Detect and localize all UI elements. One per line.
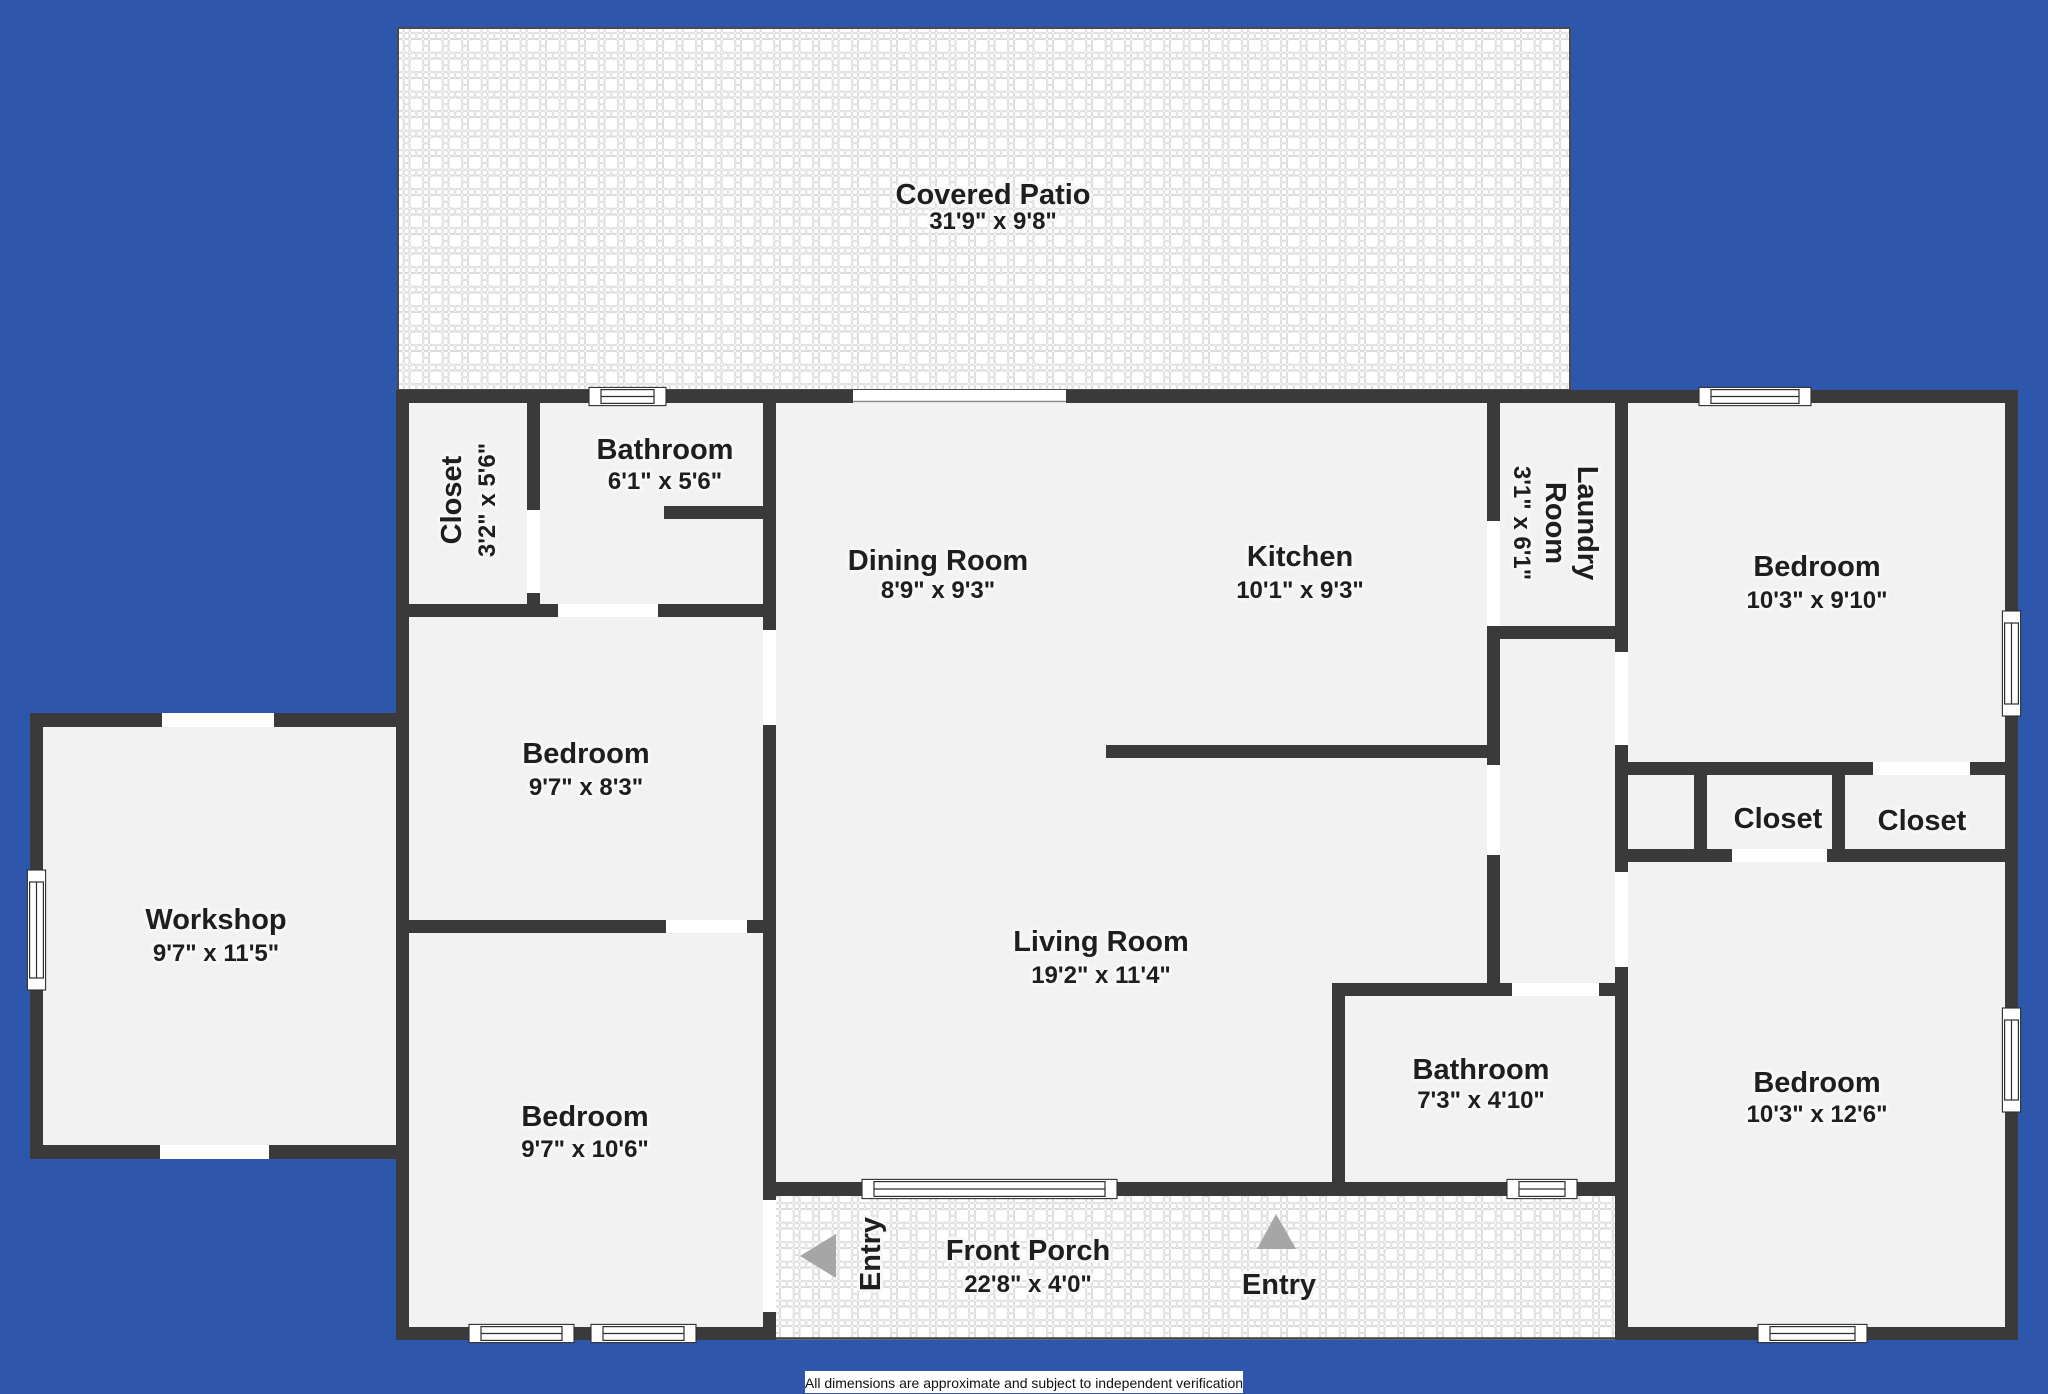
svg-text:Bathroom: Bathroom — [597, 434, 734, 466]
svg-text:Room: Room — [1539, 482, 1571, 564]
svg-text:3'2" x 5'6": 3'2" x 5'6" — [474, 443, 501, 557]
svg-text:Bedroom: Bedroom — [1753, 1067, 1880, 1099]
svg-text:Bedroom: Bedroom — [1753, 551, 1880, 583]
svg-text:Bedroom: Bedroom — [522, 738, 649, 770]
svg-text:Workshop: Workshop — [145, 904, 286, 936]
svg-text:Bedroom: Bedroom — [521, 1101, 648, 1133]
svg-text:Dining Room: Dining Room — [848, 545, 1028, 577]
svg-text:19'2" x 11'4": 19'2" x 11'4" — [1031, 962, 1171, 989]
svg-text:All dimensions are approximate: All dimensions are approximate and subje… — [805, 1375, 1243, 1391]
svg-text:Covered Patio: Covered Patio — [896, 179, 1091, 211]
svg-text:Closet: Closet — [436, 455, 468, 544]
svg-text:Living Room: Living Room — [1013, 926, 1189, 958]
svg-text:Kitchen: Kitchen — [1247, 541, 1353, 573]
svg-text:Entry: Entry — [1242, 1269, 1316, 1301]
svg-text:Entry: Entry — [855, 1217, 887, 1291]
svg-text:Bathroom: Bathroom — [1413, 1054, 1550, 1086]
svg-text:31'9" x 9'8": 31'9" x 9'8" — [929, 208, 1057, 235]
svg-text:9'7" x 11'5": 9'7" x 11'5" — [153, 940, 279, 967]
svg-text:8'9" x 9'3": 8'9" x 9'3" — [881, 577, 995, 604]
svg-text:Closet: Closet — [1878, 805, 1967, 837]
svg-text:10'1" x 9'3": 10'1" x 9'3" — [1236, 577, 1364, 604]
svg-text:10'3" x 9'10": 10'3" x 9'10" — [1747, 587, 1888, 614]
svg-text:3'1" x 6'1": 3'1" x 6'1" — [1508, 466, 1535, 580]
svg-text:Closet: Closet — [1734, 803, 1823, 835]
svg-text:22'8" x 4'0": 22'8" x 4'0" — [964, 1271, 1092, 1298]
svg-text:7'3" x 4'10": 7'3" x 4'10" — [1417, 1087, 1545, 1114]
svg-text:10'3" x 12'6": 10'3" x 12'6" — [1747, 1101, 1888, 1128]
svg-text:Front Porch: Front Porch — [946, 1235, 1110, 1267]
svg-text:Laundry: Laundry — [1571, 466, 1603, 580]
svg-text:6'1" x 5'6": 6'1" x 5'6" — [608, 468, 722, 495]
svg-text:9'7" x 8'3": 9'7" x 8'3" — [529, 774, 643, 801]
svg-text:9'7" x 10'6": 9'7" x 10'6" — [521, 1136, 649, 1163]
